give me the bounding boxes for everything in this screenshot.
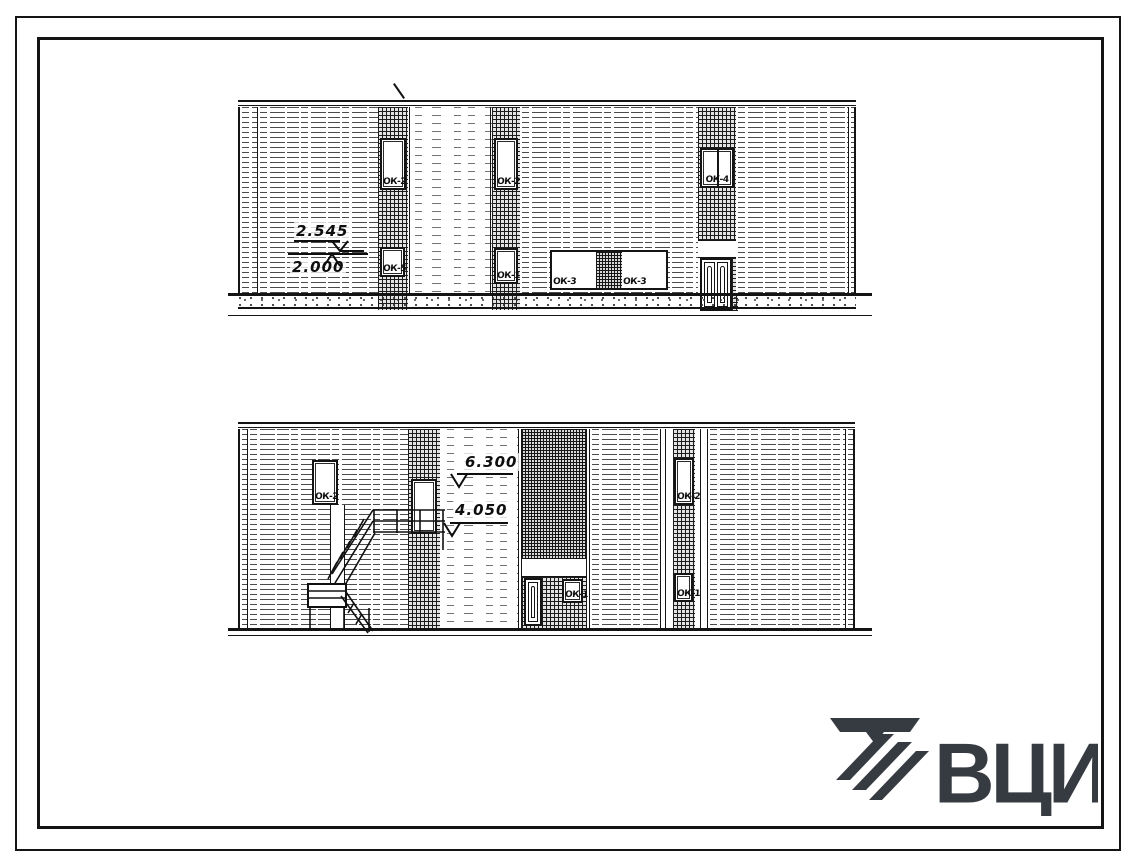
ground-line-thin [228,315,872,316]
window-ok1-strip: ОК-1 [674,573,693,602]
twin-window-group-ok3: ОК-3 ОК-3 [550,250,668,290]
wall-panel [666,429,673,628]
panel-joint [660,429,661,628]
panel-joint [409,107,410,293]
corner-pilaster-left [238,429,248,628]
corner-pilaster-right [848,107,856,293]
window-label: ОК-4 [705,175,729,185]
level-mark-text: 6.300 [463,453,519,471]
window-label: ОК-3 [623,277,647,287]
parapet-line [238,100,856,102]
panel-joint [490,107,491,293]
window-ok2-left: ОК-2 [312,460,338,505]
window-label: ОК-2 [315,492,339,502]
window-label: ОК-2 [677,492,701,502]
bottom-elevation: ОК-2 ОК-1 ОК-2 ОК-1 [238,420,856,650]
door-leaf [528,582,538,622]
vcis-logo-icon [830,718,929,800]
entrance-door [524,578,542,626]
wall-panel [708,429,845,628]
window-ok2-b: ОК-2 [494,138,518,190]
ground-line [228,628,872,631]
level-mark-arrow [451,472,513,490]
parapet-line [238,422,855,424]
stair-tower-glazing [522,429,586,558]
window-label: ОК-2 [383,177,407,187]
window-ok2-strip: ОК-2 [674,458,694,505]
window-label: ОК-3 [553,277,577,287]
wall-panel [590,429,660,628]
vcis-logo-text: ВЦИС [934,725,1098,816]
entrance-lintel [522,558,586,577]
corner-pilaster-left [238,107,258,293]
plinth-band [238,296,856,309]
wall-panel [736,107,848,293]
wall-panel [248,429,408,628]
window-ok1-entrance: ОК-1 [562,579,583,603]
window-ok3-right: ОК-3 [622,252,666,288]
corner-pilaster-right [845,429,855,628]
window-ok2-a: ОК-2 [380,138,406,190]
window-ok1-b: ОК-1 [494,248,518,284]
level-mark-arrow [444,521,508,539]
window-ok5: ОК-5 [380,247,405,277]
level-mark-text: 2.545 [294,222,350,240]
window-ok4: ОК-4 [700,148,734,188]
level-mark-arrow [288,252,368,268]
wall-panel [408,107,492,293]
parapet-line-2 [238,105,856,106]
window-label: ОК-2 [497,177,521,187]
pier-hatch [596,252,622,288]
window-label: ОК-1 [677,589,701,599]
window-label: ОК-5 [383,264,407,274]
ground-line-thin [228,635,872,636]
parapet-line-2 [238,427,855,428]
downpipe-strip [330,505,345,628]
drawing-sheet: ОК-2 ОК-5 ОК-2 ОК-1 ОК-3 ОК-3 [0,0,1134,863]
stair-platform-doorway [411,479,437,534]
window-label: ОК-1 [565,590,589,600]
vcis-logo: ВЦИС [828,714,1098,816]
level-mark-text: 4.050 [453,501,509,519]
window-ok3-left: ОК-3 [552,252,596,288]
door-lintel [698,240,736,258]
top-elevation: ОК-2 ОК-5 ОК-2 ОК-1 ОК-3 ОК-3 [238,98,856,328]
panel-joint [700,429,701,628]
window-label: ОК-1 [497,271,521,281]
